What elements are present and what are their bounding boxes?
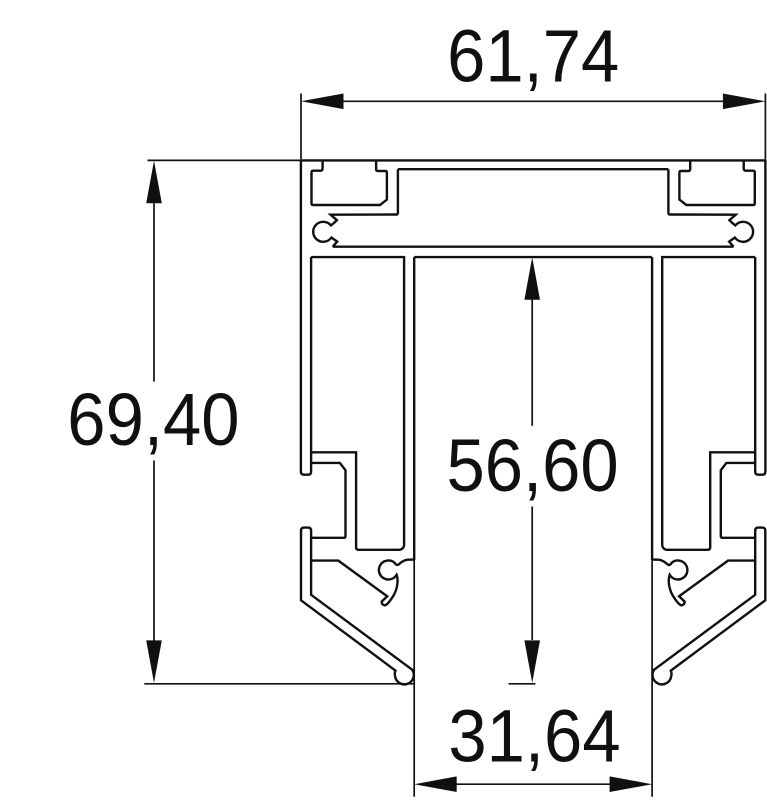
svg-text:56,60: 56,60: [447, 425, 619, 508]
svg-text:31,64: 31,64: [448, 695, 620, 778]
svg-text:61,74: 61,74: [447, 15, 619, 98]
svg-text:69,40: 69,40: [67, 379, 239, 462]
